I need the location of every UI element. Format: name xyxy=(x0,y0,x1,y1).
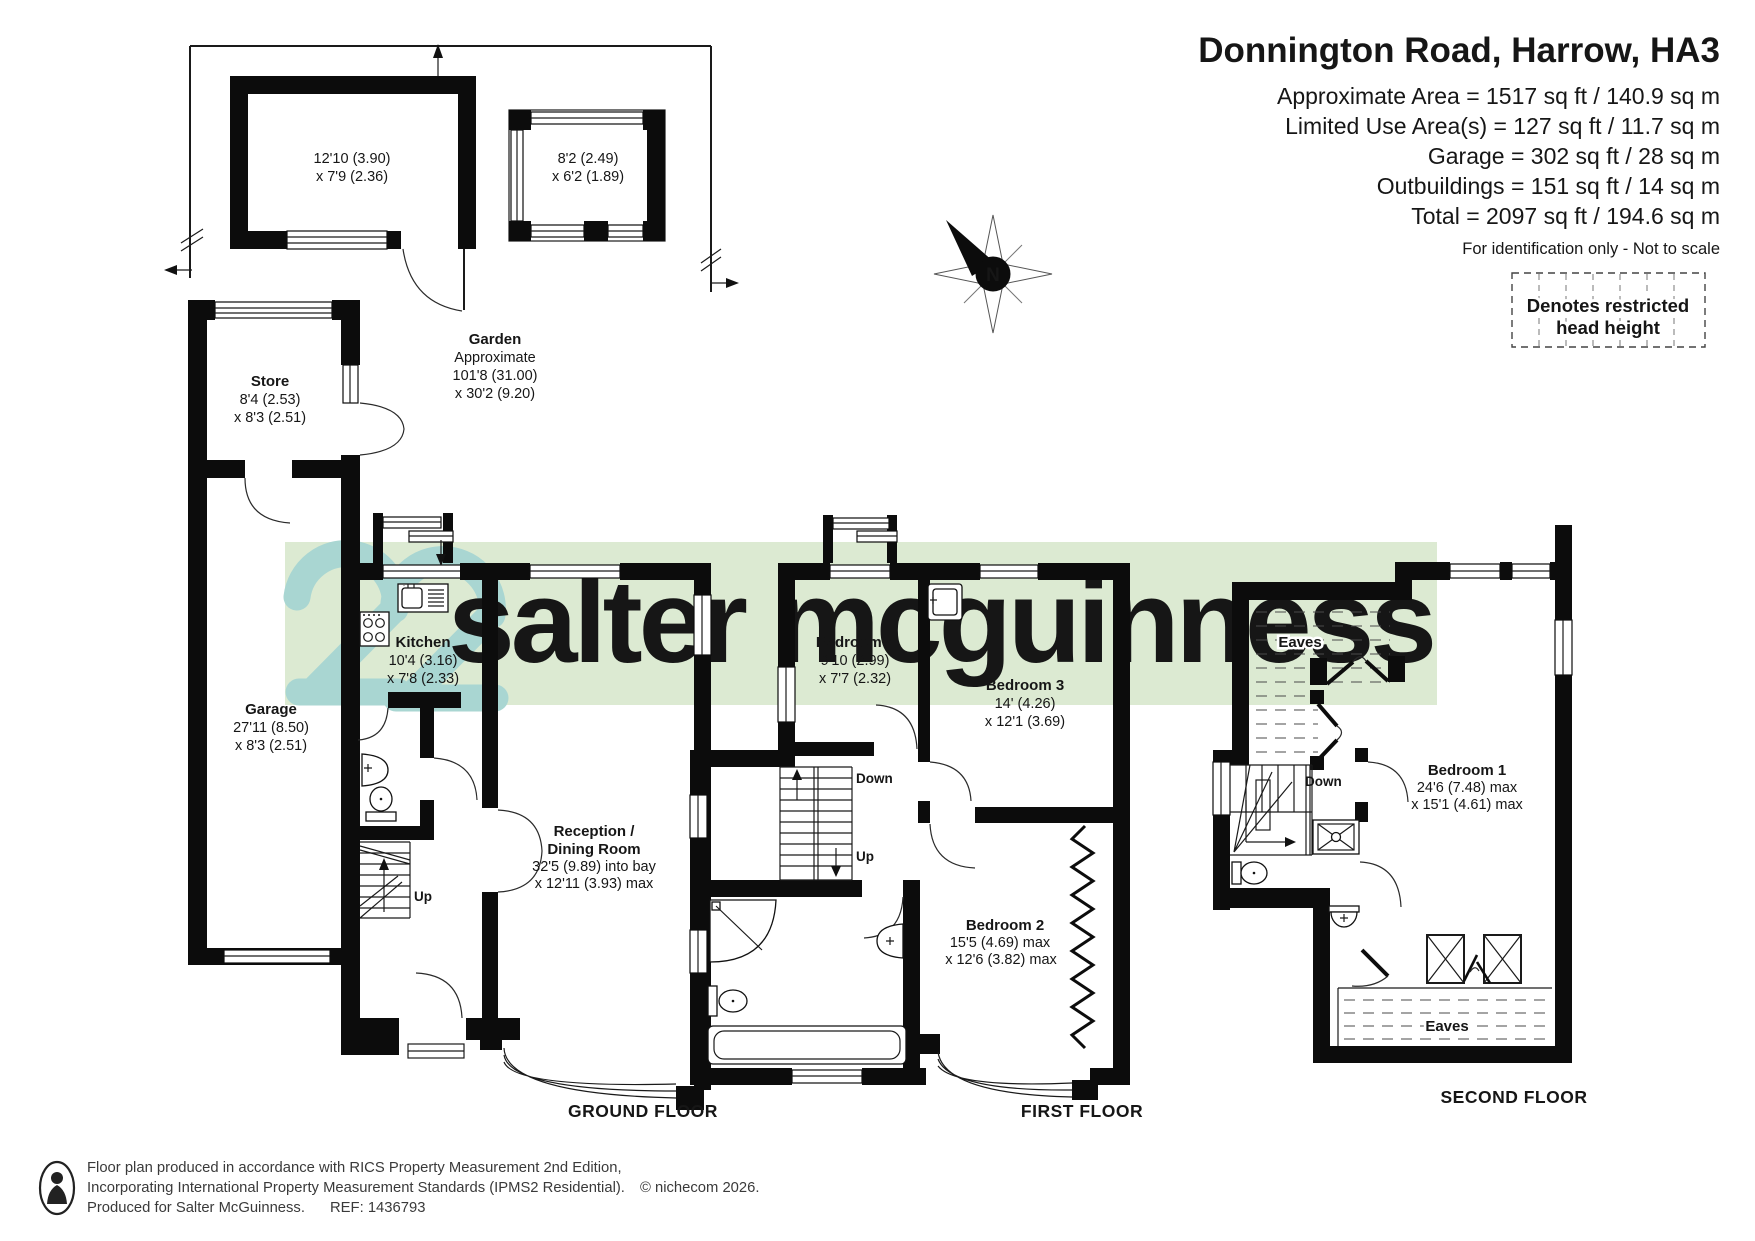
room-label: Bedroom 1 xyxy=(1428,762,1506,779)
room-label: 12'10 (3.90) xyxy=(314,151,391,167)
room-label: x 15'1 (4.61) max xyxy=(1411,797,1523,813)
stairs-direction-label: Down xyxy=(1305,774,1342,789)
area-line: Approximate Area = 1517 sq ft / 140.9 sq… xyxy=(1277,83,1720,109)
room-label: 8'4 (2.53) xyxy=(240,392,301,408)
room-label: 24'6 (7.48) max xyxy=(1417,780,1518,796)
header: Donnington Road, Harrow, HA3 Approximate… xyxy=(1198,31,1720,258)
disclaimer: For identification only - Not to scale xyxy=(1462,240,1720,258)
basin-icon xyxy=(877,924,903,958)
room-label: 15'5 (4.69) max xyxy=(950,935,1051,951)
area-line: Garage = 302 sq ft / 28 sq m xyxy=(1428,143,1720,169)
sink-icon xyxy=(398,584,448,612)
shower-icon xyxy=(710,900,776,962)
room-label: x 8'3 (2.51) xyxy=(235,738,307,754)
floorplan-canvas: salter mcguinness Donnington Road, Harro… xyxy=(0,0,1755,1241)
garden-label: Garden Approximate 101'8 (31.00) x 30'2 … xyxy=(453,331,538,402)
stairs-up: Up xyxy=(360,842,432,918)
room-label: x 6'2 (1.89) xyxy=(552,169,624,185)
ground-floor-plan: 12'10 (3.90) x 7'9 (2.36) 8'2 (2.49) x 6… xyxy=(164,44,739,1110)
room-label: 27'11 (8.50) xyxy=(233,720,309,736)
wc-room xyxy=(341,708,477,840)
store-room: Store 8'4 (2.53) x 8'3 (2.51) xyxy=(188,300,404,523)
person-icon xyxy=(40,1162,74,1214)
footer-line: Floor plan produced in accordance with R… xyxy=(87,1160,622,1176)
room-label: 8'2 (2.49) xyxy=(558,151,619,167)
sloped-wall-zigzag xyxy=(1072,826,1093,1048)
bathroom xyxy=(708,900,906,1064)
room-label: 101'8 (31.00) xyxy=(453,368,538,384)
room-label: 9'10 (2.99) xyxy=(821,653,890,669)
room-label: Garage xyxy=(245,701,297,718)
floor-title: FIRST FLOOR xyxy=(1021,1101,1143,1121)
room-label: x 12'1 (3.69) xyxy=(985,714,1065,730)
room-label: Kitchen xyxy=(395,634,450,651)
room-label: Approximate xyxy=(454,350,535,366)
footer-line: Produced for Salter McGuinness. xyxy=(87,1200,305,1216)
bay-window xyxy=(480,1030,704,1110)
eaves-area-bottom: Eaves xyxy=(1338,988,1552,1046)
page-title: Donnington Road, Harrow, HA3 xyxy=(1198,31,1720,70)
room-label: 32'5 (9.89) into bay xyxy=(532,859,656,875)
compass-north-label: N xyxy=(986,265,1000,286)
room-label: x 12'11 (3.93) max xyxy=(535,876,654,892)
stairs-up-down: Down Up xyxy=(780,767,893,880)
restricted-height-legend: Denotes restricted head height xyxy=(1512,273,1705,347)
eaves-label: Eaves xyxy=(1278,634,1321,651)
compass-icon: N xyxy=(934,215,1052,333)
outbuilding-1: 12'10 (3.90) x 7'9 (2.36) xyxy=(230,76,476,311)
toilet-icon xyxy=(366,787,396,821)
area-line: Outbuildings = 151 sq ft / 14 sq m xyxy=(1377,173,1720,199)
room-label: Store xyxy=(251,373,289,390)
room-label: Garden xyxy=(469,331,522,348)
toilet-icon xyxy=(708,986,747,1016)
basin-icon xyxy=(1329,906,1359,927)
legend-text-1: Denotes restricted xyxy=(1527,295,1689,316)
footer-copyright: © nichecom 2026. xyxy=(640,1180,759,1196)
stairs-direction-label: Up xyxy=(414,889,432,904)
footer-line: Incorporating International Property Mea… xyxy=(87,1180,625,1196)
shower-icon xyxy=(1313,820,1359,854)
room-label: x 8'3 (2.51) xyxy=(234,410,306,426)
room-label: x 12'6 (3.82) max xyxy=(945,952,1057,968)
room-label: Bedroom 2 xyxy=(966,917,1044,934)
footer: Floor plan produced in accordance with R… xyxy=(40,1160,759,1216)
legend-text-2: head height xyxy=(1556,317,1660,338)
footer-ref: REF: 1436793 xyxy=(330,1200,425,1216)
outbuilding-2: 8'2 (2.49) x 6'2 (1.89) xyxy=(509,110,665,241)
room-label: 10'4 (3.16) xyxy=(389,653,458,669)
wash-basin-icon xyxy=(928,584,962,620)
room-label: Dining Room xyxy=(547,841,640,858)
bay-window xyxy=(920,1034,1098,1100)
room-label: Reception / xyxy=(554,823,636,840)
room-label: Bedroom 3 xyxy=(986,677,1064,694)
room-label: x 7'9 (2.36) xyxy=(316,169,388,185)
stairs-direction-label: Up xyxy=(856,849,874,864)
room-label: 14' (4.26) xyxy=(995,696,1056,712)
room-label: x 7'8 (2.33) xyxy=(387,671,459,687)
area-line: Limited Use Area(s) = 127 sq ft / 11.7 s… xyxy=(1285,113,1720,139)
room-label: x 30'2 (9.20) xyxy=(455,386,535,402)
hall-door xyxy=(1352,950,1388,986)
area-line: Total = 2097 sq ft / 194.6 sq m xyxy=(1411,203,1720,229)
basin-icon xyxy=(362,754,388,786)
toilet-icon xyxy=(1232,862,1267,884)
eaves-label: Eaves xyxy=(1425,1018,1468,1035)
wardrobes-icon xyxy=(1427,935,1521,983)
floor-title: SECOND FLOOR xyxy=(1441,1087,1588,1107)
bathtub-icon xyxy=(708,1026,906,1064)
room-label: Bedroom 4 xyxy=(816,634,895,651)
room-label: x 7'7 (2.32) xyxy=(819,671,891,687)
floorplan-page: salter mcguinness Donnington Road, Harro… xyxy=(0,0,1755,1241)
floor-title: GROUND FLOOR xyxy=(568,1101,718,1121)
hob-icon xyxy=(360,612,389,646)
stairs-direction-label: Down xyxy=(856,771,893,786)
